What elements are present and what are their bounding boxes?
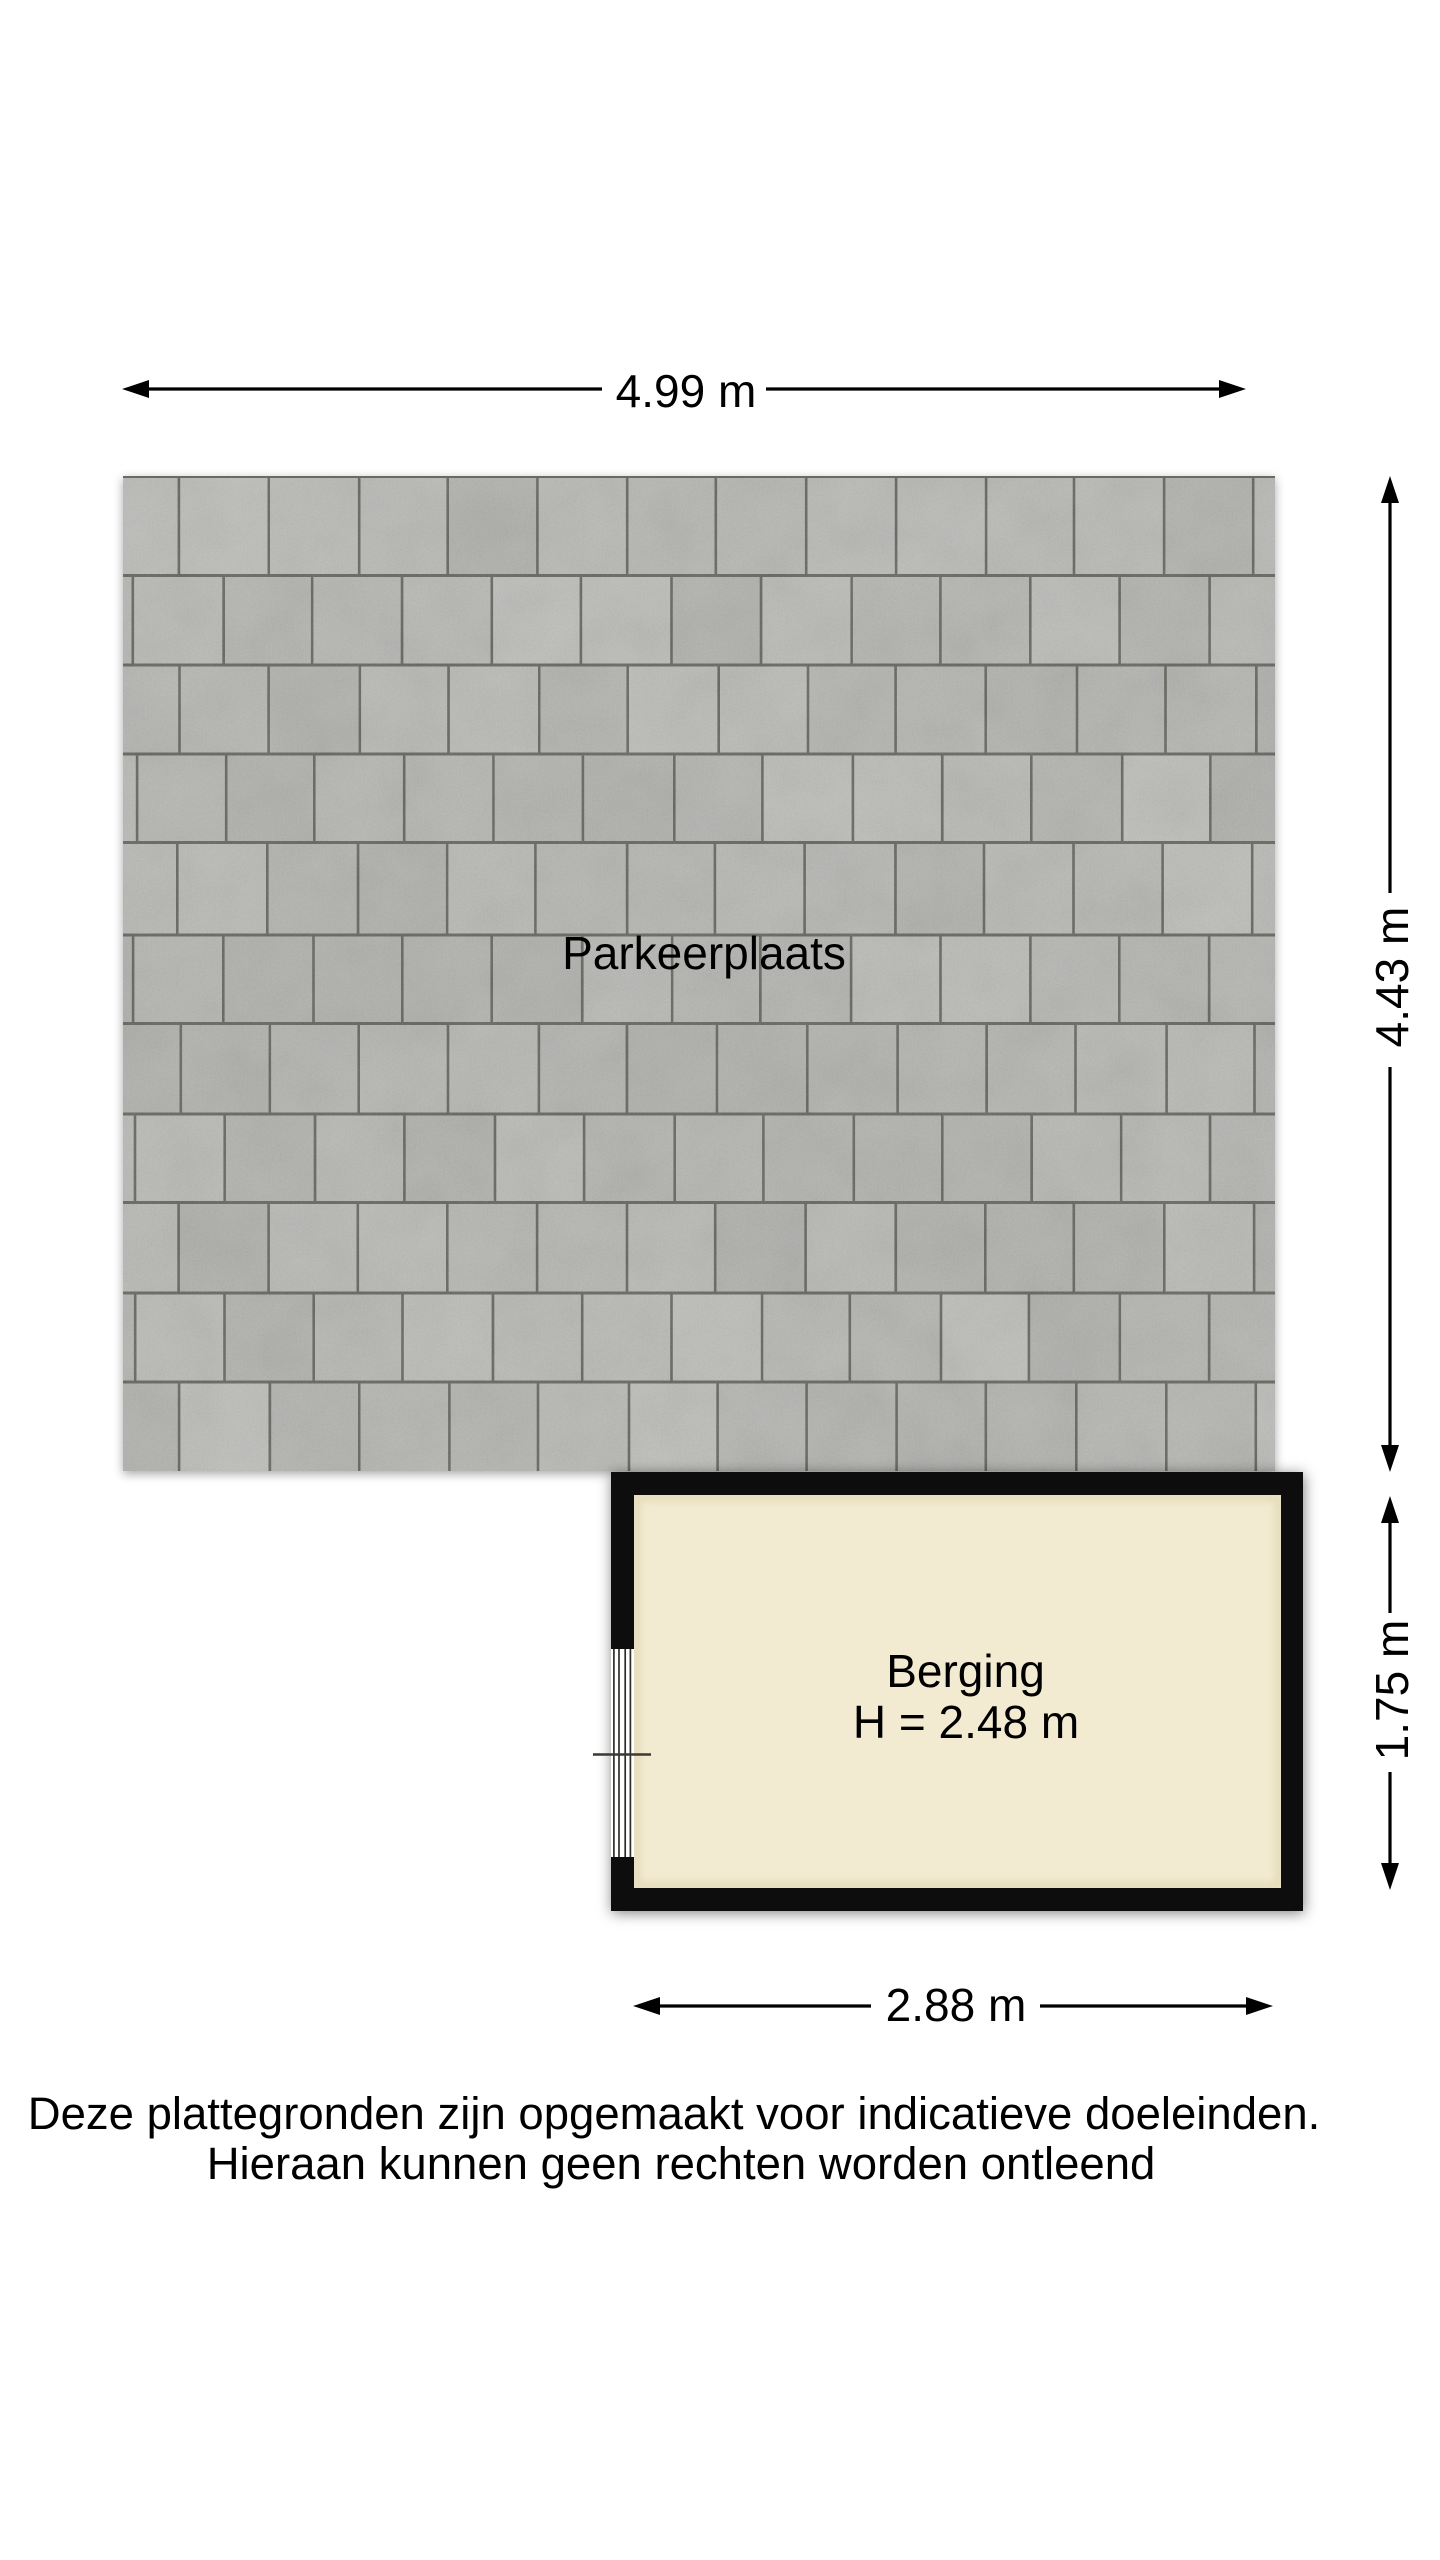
svg-text:Hieraan kunnen geen rechten wo: Hieraan kunnen geen rechten worden ontle… bbox=[207, 2138, 1156, 2189]
svg-text:Deze plattegronden zijn opgema: Deze plattegronden zijn opgemaakt voor i… bbox=[28, 2088, 1321, 2139]
svg-text:1.75 m: 1.75 m bbox=[1366, 1620, 1418, 1761]
svg-text:4.43 m: 4.43 m bbox=[1366, 907, 1418, 1048]
svg-text:2.88 m: 2.88 m bbox=[886, 1979, 1027, 2031]
svg-text:Berging: Berging bbox=[886, 1645, 1045, 1697]
svg-text:Parkeerplaats: Parkeerplaats bbox=[562, 927, 846, 979]
svg-text:4.99 m: 4.99 m bbox=[616, 365, 757, 417]
svg-text:H = 2.48 m: H = 2.48 m bbox=[853, 1696, 1079, 1748]
